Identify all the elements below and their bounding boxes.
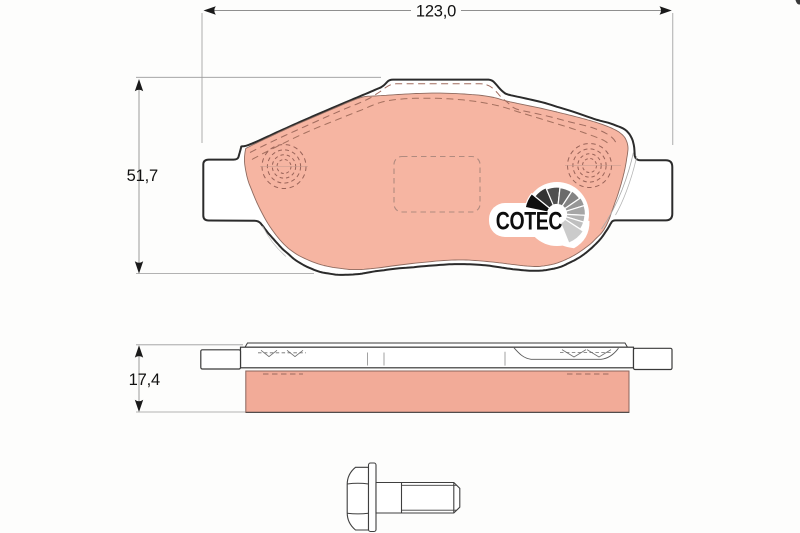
svg-text:17,4: 17,4 — [129, 371, 160, 389]
svg-text:51,7: 51,7 — [127, 167, 158, 185]
svg-text:123,0: 123,0 — [416, 3, 456, 21]
svg-text:COTEC: COTEC — [496, 207, 562, 235]
